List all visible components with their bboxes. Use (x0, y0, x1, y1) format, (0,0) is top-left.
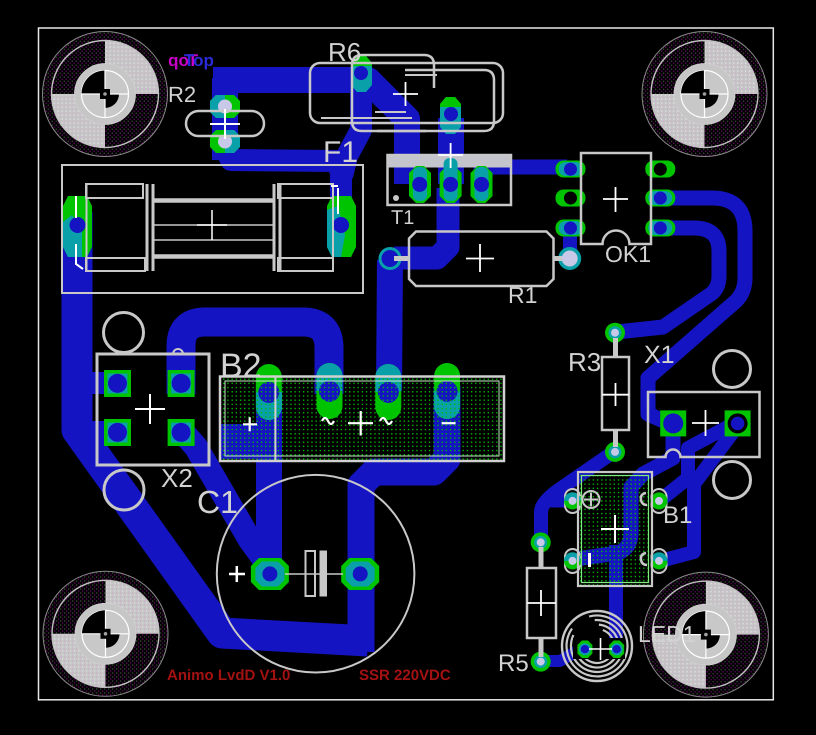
svg-text:Top: Top (184, 51, 214, 70)
svg-text:Animo LvdD V1.0: Animo LvdD V1.0 (167, 667, 290, 684)
svg-text:SSR 220VDC: SSR 220VDC (359, 667, 451, 684)
svg-text:T1: T1 (391, 207, 414, 229)
svg-text:R6: R6 (328, 37, 361, 67)
svg-text:X2: X2 (161, 463, 193, 493)
svg-text:F1: F1 (323, 136, 358, 169)
svg-text:C1: C1 (197, 484, 238, 520)
svg-text:X1: X1 (644, 341, 675, 369)
svg-text:R1: R1 (508, 282, 537, 308)
svg-text:R3: R3 (568, 347, 601, 377)
svg-text:B2: B2 (220, 347, 262, 385)
svg-text:LED1: LED1 (638, 621, 696, 647)
svg-text:OK1: OK1 (605, 241, 651, 267)
svg-text:R2: R2 (168, 82, 196, 107)
svg-text:B1: B1 (663, 502, 692, 529)
svg-text:R5: R5 (498, 650, 529, 677)
